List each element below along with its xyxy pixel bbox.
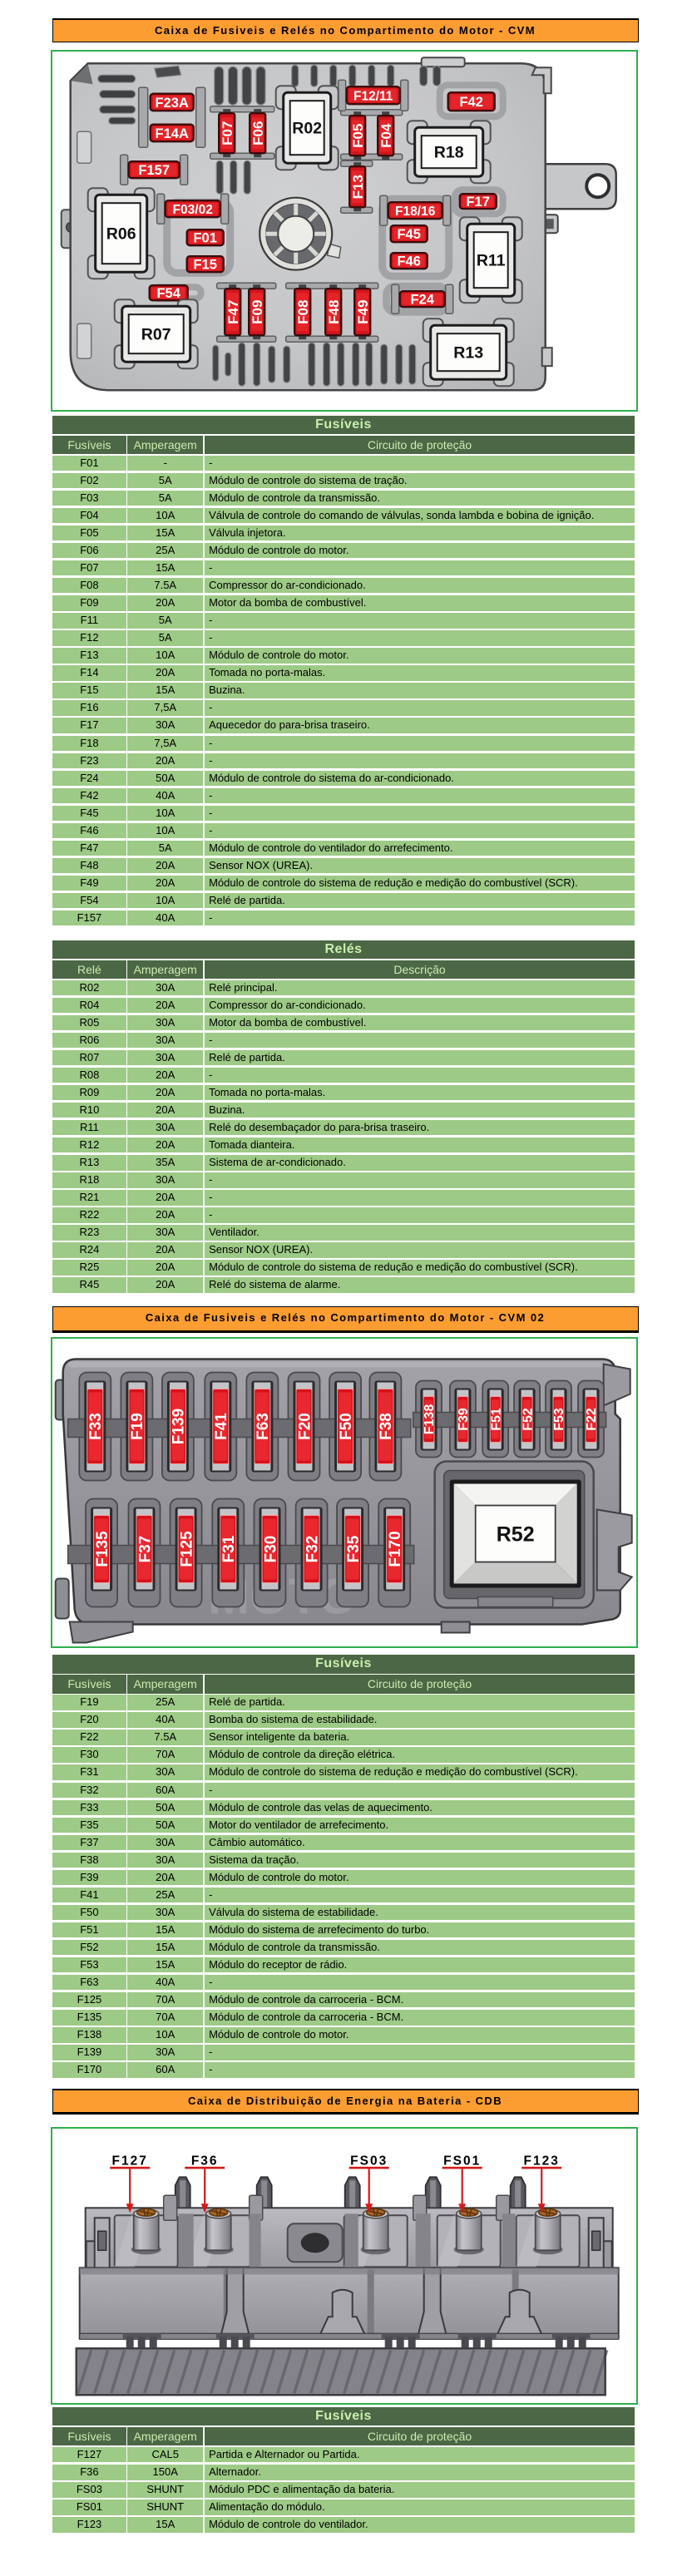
svg-text:F12/11: F12/11 (353, 89, 393, 103)
svg-text:R11: R11 (477, 252, 506, 270)
svg-text:F37: F37 (137, 1535, 155, 1562)
svg-text:F17: F17 (467, 195, 490, 210)
svg-text:F50: F50 (338, 1413, 355, 1440)
svg-text:R52: R52 (497, 1522, 535, 1546)
svg-text:F19: F19 (130, 1413, 147, 1440)
svg-text:F18/16: F18/16 (395, 205, 436, 219)
svg-text:F63: F63 (255, 1413, 273, 1440)
svg-text:F23A: F23A (156, 96, 189, 111)
svg-text:F20: F20 (297, 1413, 314, 1440)
svg-text:F04: F04 (378, 123, 394, 148)
svg-text:R06: R06 (106, 225, 136, 244)
svg-text:F36: F36 (191, 2154, 219, 2168)
svg-text:F139: F139 (171, 1408, 188, 1443)
svg-text:F53: F53 (553, 1408, 567, 1431)
svg-text:F52: F52 (521, 1408, 536, 1431)
svg-text:F32: F32 (304, 1535, 322, 1562)
svg-text:F24: F24 (411, 292, 435, 307)
svg-text:F49: F49 (355, 299, 371, 323)
svg-text:R02: R02 (293, 120, 323, 138)
svg-text:F38: F38 (378, 1413, 396, 1440)
svg-text:F08: F08 (295, 299, 311, 323)
svg-text:F09: F09 (250, 299, 265, 323)
svg-text:F48: F48 (326, 299, 342, 323)
svg-text:F54: F54 (157, 286, 181, 301)
svg-text:FS01: FS01 (443, 2154, 481, 2168)
svg-text:F170: F170 (387, 1531, 404, 1567)
svg-text:F51: F51 (490, 1408, 504, 1431)
svg-text:R13: R13 (454, 344, 484, 363)
svg-text:F157: F157 (139, 163, 171, 178)
svg-text:F07: F07 (220, 121, 235, 145)
svg-text:F125: F125 (179, 1530, 196, 1567)
svg-text:F35: F35 (345, 1535, 363, 1562)
svg-text:F135: F135 (94, 1530, 111, 1567)
svg-text:F22: F22 (586, 1408, 600, 1431)
svg-text:F127: F127 (112, 2154, 148, 2168)
svg-text:F15: F15 (194, 257, 217, 272)
svg-text:R07: R07 (141, 326, 171, 344)
svg-text:F03/02: F03/02 (173, 203, 213, 217)
svg-text:F46: F46 (398, 254, 421, 269)
svg-text:F123: F123 (524, 2154, 560, 2168)
svg-text:F42: F42 (460, 95, 483, 110)
svg-text:F14A: F14A (156, 126, 189, 141)
svg-text:F45: F45 (398, 227, 421, 242)
svg-text:F06: F06 (250, 121, 266, 145)
svg-text:F01: F01 (194, 230, 217, 245)
svg-text:F30: F30 (263, 1535, 280, 1562)
svg-text:F138: F138 (423, 1404, 437, 1434)
svg-text:F47: F47 (225, 299, 241, 323)
svg-text:F05: F05 (350, 123, 366, 147)
svg-text:R18: R18 (434, 144, 464, 162)
svg-text:FS03: FS03 (350, 2154, 388, 2168)
svg-text:F13: F13 (350, 175, 366, 199)
svg-text:F31: F31 (220, 1535, 238, 1562)
svg-text:F41: F41 (213, 1412, 230, 1439)
svg-text:F33: F33 (87, 1413, 105, 1440)
svg-text:F39: F39 (457, 1408, 471, 1431)
